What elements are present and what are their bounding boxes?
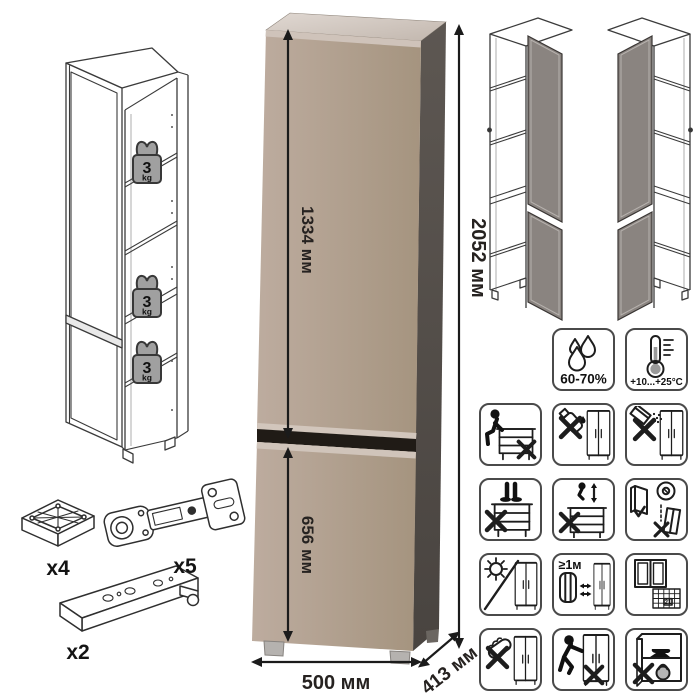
door-variants <box>480 8 700 330</box>
svg-text:+10...+25°C: +10...+25°C <box>630 377 682 388</box>
temperature-icon: +10...+25°C <box>625 328 688 391</box>
cabinet-render: 1334 мм 656 мм 2052 мм 500 мм 41 <box>240 5 500 700</box>
no-standing-icon <box>479 478 542 541</box>
no-sitting-icon <box>479 403 542 466</box>
open-door-panel <box>66 63 122 447</box>
svg-text:≥1м: ≥1м <box>558 558 581 572</box>
foot <box>165 437 175 450</box>
open-cabinet-wireframe <box>25 15 225 485</box>
no-direct-sunlight-icon <box>479 553 542 616</box>
hardware-panel: x4 x5 x2 <box>8 478 258 688</box>
care-icon-grid: 60-70% +10...+25°C <box>479 328 688 691</box>
no-dragging-icon <box>552 628 615 691</box>
foot-count: x4 <box>46 557 70 580</box>
foot <box>264 641 284 656</box>
no-overload-icon <box>625 628 688 691</box>
lower-door-height-label: 656 мм <box>298 516 317 574</box>
rail-count: x2 <box>66 641 89 664</box>
adjust-hinges-level-icon <box>625 478 688 541</box>
heat-source-distance-icon: ≥1м <box>552 553 615 616</box>
width-label: 500 мм <box>302 672 371 694</box>
ventilate-room-icon: 21 <box>625 553 688 616</box>
shelf-pin-holes <box>171 114 173 411</box>
upper-door-height-label: 1334 мм <box>298 206 317 274</box>
hinge-count: x5 <box>173 555 197 578</box>
svg-text:21: 21 <box>665 600 672 606</box>
lower-door <box>252 442 416 651</box>
variant-cabinet-mirrored <box>608 18 692 320</box>
product-sheet: 3 kg <box>0 0 700 700</box>
foot <box>123 449 133 463</box>
humidity-icon: 60-70% <box>552 328 615 391</box>
no-jumping-icon <box>552 478 615 541</box>
no-liquids-icon <box>552 403 615 466</box>
dim-width: 500 мм <box>251 657 422 694</box>
foot-illustration <box>22 500 94 546</box>
svg-text:60-70%: 60-70% <box>560 372 607 387</box>
no-abrasive-sponge-icon <box>479 628 542 691</box>
foot <box>426 629 439 643</box>
no-abrasive-powder-icon <box>625 403 688 466</box>
hinge-illustration <box>101 478 246 554</box>
gray-door <box>528 36 562 320</box>
depth-label: 413 мм <box>418 642 482 699</box>
variant-cabinet <box>488 18 572 320</box>
upper-door <box>257 30 421 439</box>
